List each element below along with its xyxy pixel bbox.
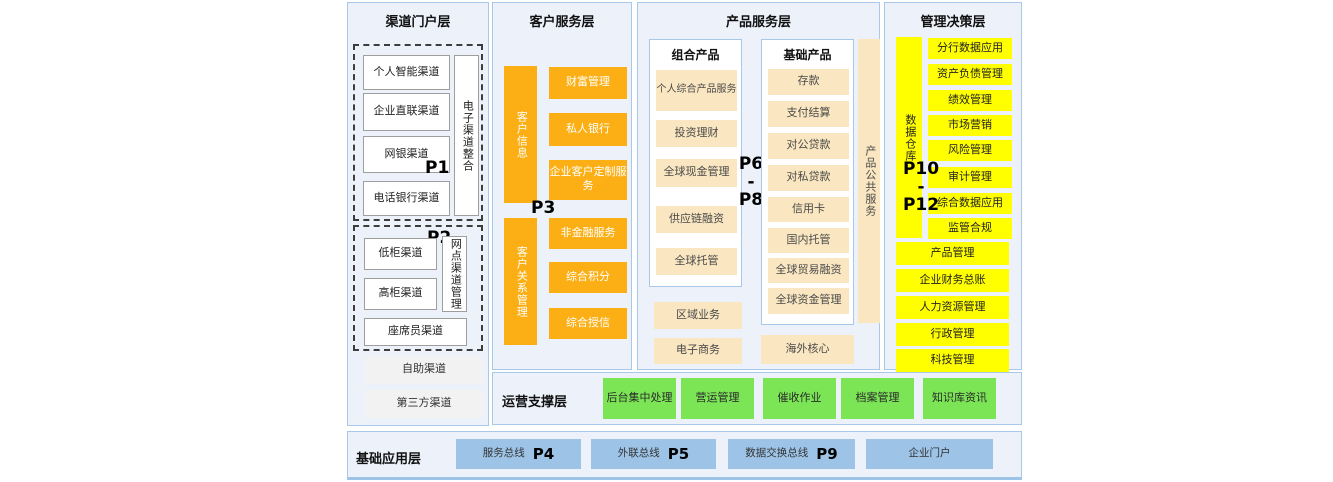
electronic-channel-group: 个人智能渠道 企业直联渠道 网银渠道 电话银行渠道 电子渠道整合 P1 xyxy=(353,44,483,221)
p4-tag: P4 xyxy=(533,445,554,464)
management-box: 监管合规 xyxy=(928,218,1012,239)
product-box: 个人综合产品服务 xyxy=(656,70,737,111)
product-box: 区域业务 xyxy=(654,302,742,329)
management-box: 资产负债管理 xyxy=(928,64,1012,85)
branch-channel-group: P2 低柜渠道 高柜渠道 网点渠道管理 座席员渠道 xyxy=(353,225,483,351)
product-box: 供应链融资 xyxy=(656,206,737,233)
operations-box: 催收作业 xyxy=(763,378,836,419)
product-box: 对公贷款 xyxy=(768,133,849,159)
management-box: 科技管理 xyxy=(896,349,1009,372)
channel-box: 高柜渠道 xyxy=(364,278,437,310)
channel-box: 电话银行渠道 xyxy=(363,181,450,216)
channel-box: 自助渠道 xyxy=(365,356,483,384)
electronic-channel-integration-bar: 电子渠道整合 xyxy=(454,55,479,216)
bus-label: 服务总线 xyxy=(483,447,525,460)
customer-service-box: 私人银行 xyxy=(549,113,627,146)
product-public-services-bar: 产品公共服务 xyxy=(858,39,880,323)
branch-channel-management-bar: 网点渠道管理 xyxy=(442,236,467,312)
product-box: 投资理财 xyxy=(656,120,737,147)
operations-layer-title: 运营支撑层 xyxy=(502,391,567,410)
product-box: 存款 xyxy=(768,69,849,95)
data-exchange-bus-box: 数据交换总线 P9 xyxy=(728,439,855,469)
p12-tag: P12 xyxy=(895,197,947,215)
external-bus-box: 外联总线 P5 xyxy=(591,439,716,469)
channel-box: 个人智能渠道 xyxy=(363,55,450,90)
tag-separator: - xyxy=(895,179,947,197)
customer-service-box: 综合授信 xyxy=(549,308,627,339)
customer-service-box: 财富管理 xyxy=(549,67,627,99)
product-box: 全球贸易融资 xyxy=(768,258,849,283)
management-box: 行政管理 xyxy=(896,323,1009,346)
customer-service-box: 企业客户定制服务 xyxy=(549,160,627,200)
management-box: 人力资源管理 xyxy=(896,296,1009,319)
product-box: 支付结算 xyxy=(768,101,849,127)
combo-products-group: 组合产品 个人综合产品服务 投资理财 全球现金管理 供应链融资 全球托管 xyxy=(649,39,742,287)
operations-box: 营运管理 xyxy=(681,378,754,419)
p9-tag: P9 xyxy=(816,445,837,464)
service-bus-box: 服务总线 P4 xyxy=(456,439,581,469)
foundation-layer-title: 基础应用层 xyxy=(356,448,421,467)
operations-support-layer-panel: 运营支撑层 后台集中处理 营运管理 催收作业 档案管理 知识库资讯 xyxy=(492,372,1022,425)
customer-information-bar: 客户信息 xyxy=(504,66,537,203)
product-box: 信用卡 xyxy=(768,197,849,222)
channel-box: 第三方渠道 xyxy=(365,390,483,418)
product-service-layer-panel: 产品服务层 组合产品 个人综合产品服务 投资理财 全球现金管理 供应链融资 全球… xyxy=(637,2,880,370)
channel-portal-layer-panel: 渠道门户层 个人智能渠道 企业直联渠道 网银渠道 电话银行渠道 电子渠道整合 P… xyxy=(347,2,489,426)
enterprise-portal-box: 企业门户 xyxy=(866,439,993,469)
customer-service-layer-panel: 客户服务层 客户信息 财富管理 私人银行 企业客户定制服务 P3 客户关系管理 … xyxy=(492,2,632,370)
customer-relationship-management-bar: 客户关系管理 xyxy=(504,218,537,345)
channel-box: 低柜渠道 xyxy=(364,238,437,270)
p3-tag: P3 xyxy=(531,198,555,218)
product-layer-title: 产品服务层 xyxy=(638,11,879,30)
management-box: 产品管理 xyxy=(896,242,1009,265)
management-box: 风险管理 xyxy=(928,140,1012,161)
management-layer-title: 管理决策层 xyxy=(885,11,1021,30)
customer-service-box: 综合积分 xyxy=(549,262,627,293)
bus-label: 外联总线 xyxy=(618,447,660,460)
product-box: 对私贷款 xyxy=(768,165,849,191)
p5-tag: P5 xyxy=(668,445,689,464)
management-box: 企业财务总账 xyxy=(896,269,1009,292)
channel-box: 座席员渠道 xyxy=(364,318,467,346)
bus-label: 企业门户 xyxy=(909,447,951,460)
channel-box: 企业直联渠道 xyxy=(363,93,450,131)
product-box: 电子商务 xyxy=(654,338,742,364)
operations-box: 档案管理 xyxy=(841,378,914,419)
product-box: 全球现金管理 xyxy=(656,159,737,187)
customer-layer-title: 客户服务层 xyxy=(493,11,631,30)
product-box: 全球托管 xyxy=(656,248,737,275)
management-box: 市场营销 xyxy=(928,115,1012,136)
management-box: 分行数据应用 xyxy=(928,38,1012,59)
basic-products-title: 基础产品 xyxy=(762,46,853,63)
foundation-application-layer-panel: 基础应用层 服务总线 P4 外联总线 P5 数据交换总线 P9 企业门户 xyxy=(347,431,1022,480)
p1-tag: P1 xyxy=(425,158,449,178)
product-box: 海外核心 xyxy=(761,335,854,364)
p10-p12-tag: P10 - P12 xyxy=(895,161,947,215)
operations-box: 知识库资讯 xyxy=(923,378,996,419)
bus-label: 数据交换总线 xyxy=(745,447,808,460)
product-box: 国内托管 xyxy=(768,228,849,253)
management-decision-layer-panel: 管理决策层 数据仓库 分行数据应用 资产负债管理 绩效管理 市场营销 风险管理 … xyxy=(884,2,1022,370)
product-box: 全球资金管理 xyxy=(768,288,849,314)
management-box: 绩效管理 xyxy=(928,90,1012,111)
combo-products-title: 组合产品 xyxy=(650,46,741,63)
basic-products-group: 基础产品 存款 支付结算 对公贷款 对私贷款 信用卡 国内托管 全球贸易融资 全… xyxy=(761,39,854,325)
channel-layer-title: 渠道门户层 xyxy=(348,11,488,30)
operations-box: 后台集中处理 xyxy=(603,378,676,419)
banking-architecture-diagram: 渠道门户层 个人智能渠道 企业直联渠道 网银渠道 电话银行渠道 电子渠道整合 P… xyxy=(0,0,1333,482)
customer-service-box: 非金融服务 xyxy=(549,218,627,249)
